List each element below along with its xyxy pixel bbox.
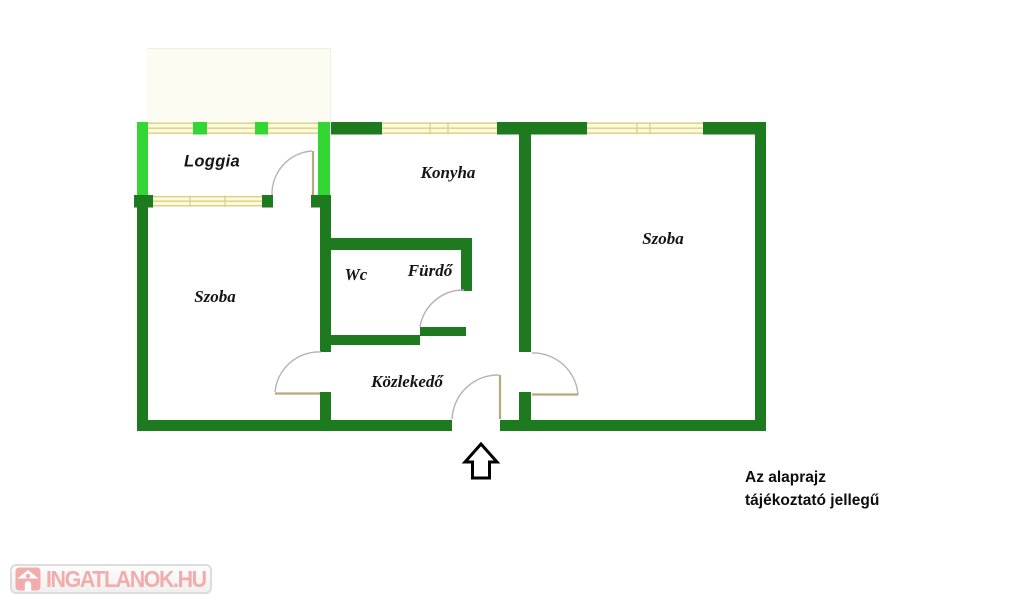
right-room-door-arc	[532, 353, 578, 395]
bathroom-door-leaf	[420, 327, 466, 336]
room-label-szoba-left: Szoba	[194, 287, 236, 307]
room-label-kozlekedo: Közlekedő	[371, 372, 443, 392]
disclaimer-line2: tájékoztató jellegű	[745, 489, 879, 512]
floorplan-drawing	[0, 0, 1024, 605]
bathroom-door-arc	[420, 290, 464, 327]
room-label-loggia: Loggia	[184, 153, 240, 172]
room-label-szoba-right: Szoba	[642, 229, 684, 249]
watermark-text: INGATLANOK.HU	[46, 566, 206, 592]
floorplan-canvas: Loggia Konyha Szoba Szoba Wc Fürdő Közle…	[0, 0, 1024, 605]
ingatlanok-watermark: INGATLANOK.HU	[10, 564, 212, 594]
room-label-wc: Wc	[345, 265, 368, 285]
entrance-door-arc	[452, 375, 499, 419]
house-icon	[15, 567, 41, 591]
room-label-furdo: Fürdő	[408, 261, 452, 281]
left-room-door-arc	[275, 352, 321, 392]
room-label-konyha: Konyha	[421, 163, 476, 183]
disclaimer-line1: Az alaprajz	[745, 466, 879, 489]
up-arrow-icon	[465, 444, 497, 478]
loggia-door-arc	[272, 151, 312, 195]
disclaimer-note: Az alaprajz tájékoztató jellegű	[745, 466, 879, 512]
